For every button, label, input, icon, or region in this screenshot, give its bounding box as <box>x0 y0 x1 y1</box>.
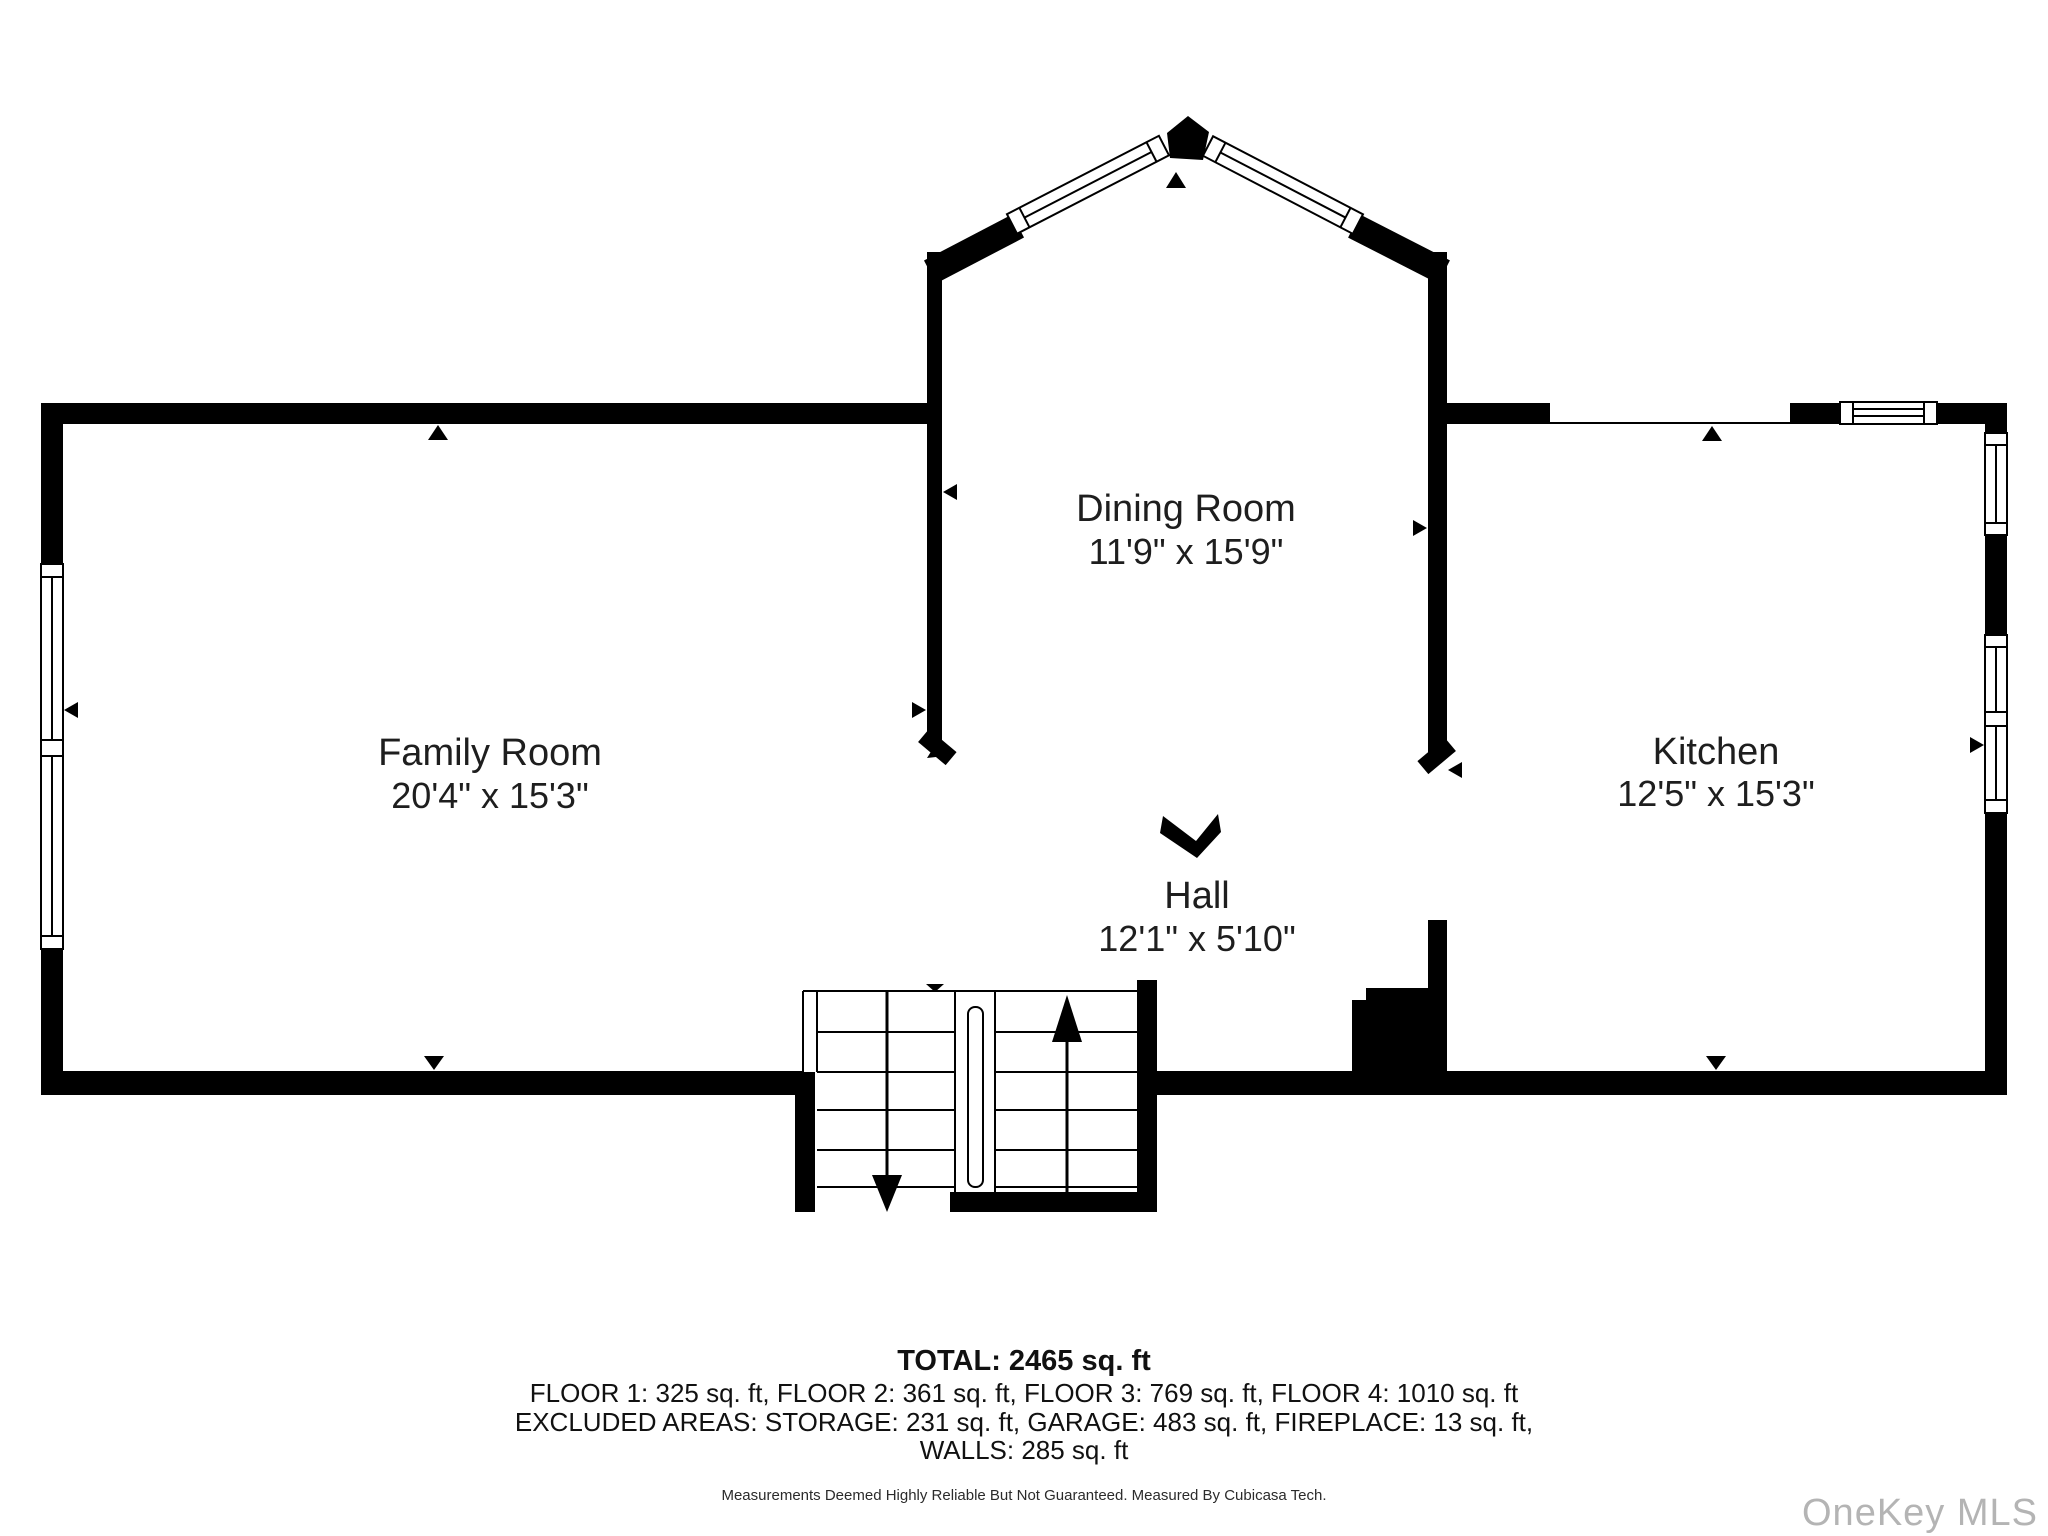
family-room-window <box>41 564 63 949</box>
room-dims-kitchen: 12'5" x 15'3" <box>1617 773 1814 814</box>
kitchen-door-swing-icon <box>1417 738 1462 778</box>
family-up-arrow-icon <box>428 425 448 440</box>
bay-peak-apex <box>1167 116 1209 160</box>
measurement-disclaimer: Measurements Deemed Highly Reliable But … <box>0 1487 2048 1504</box>
floor-plan-svg: Family Room 20'4" x 15'3" Dining Room 11… <box>0 0 2048 1536</box>
excluded-areas-text: EXCLUDED AREAS: STORAGE: 231 sq. ft, GAR… <box>0 1408 2048 1437</box>
family-down-arrow-icon <box>424 1056 444 1070</box>
dining-right-arrow-icon <box>1413 520 1427 536</box>
kitchen-right-arrow-icon <box>1970 737 1984 753</box>
onekey-mls-watermark: OneKey MLS <box>1802 1492 2038 1535</box>
stair-left-wall <box>795 1072 815 1212</box>
room-extent-arrows <box>64 172 1984 1070</box>
stair-up-arrow-icon <box>1052 995 1082 1192</box>
kitchen-down-arrow-icon <box>1706 1056 1726 1070</box>
family-right-arrow-icon <box>912 702 926 718</box>
kitchen-right-window-upper <box>1985 433 2007 535</box>
room-label-hall: Hall <box>1164 875 1229 917</box>
kitchen-right-window-lower <box>1985 635 2007 813</box>
dining-left-arrow-icon <box>943 484 957 500</box>
bay-window-right <box>1203 136 1363 234</box>
room-label-kitchen: Kitchen <box>1653 731 1780 773</box>
stair-right-wall <box>1137 980 1157 1212</box>
dining-bay-walls <box>930 226 1444 272</box>
family-left-arrow-icon <box>64 702 78 718</box>
total-area-text: TOTAL: 2465 sq. ft <box>0 1346 2048 1376</box>
stair-handrail <box>968 1007 983 1187</box>
staircase <box>795 980 1157 1212</box>
bay-window-left <box>1007 136 1169 234</box>
kitchen-top-window <box>1840 402 1937 424</box>
fireplace-block <box>1352 988 1447 1095</box>
floor-areas-text: FLOOR 1: 325 sq. ft, FLOOR 2: 361 sq. ft… <box>0 1379 2048 1408</box>
room-label-dining-room: Dining Room <box>1076 488 1296 530</box>
walls-area-text: WALLS: 285 sq. ft <box>0 1436 2048 1465</box>
room-dims-hall: 12'1" x 5'10" <box>1098 918 1295 959</box>
room-dims-family-room: 20'4" x 15'3" <box>391 775 588 816</box>
kitchen-up-arrow-icon <box>1702 426 1722 441</box>
stair-down-arrow-icon <box>872 991 902 1212</box>
room-label-family-room: Family Room <box>378 732 602 774</box>
dining-up-arrow-icon <box>1166 172 1186 188</box>
entrance-arrow-icon <box>1160 814 1221 858</box>
room-dims-dining-room: 11'9" x 15'9" <box>1089 531 1284 572</box>
stair-bottom-wall <box>950 1192 1157 1212</box>
